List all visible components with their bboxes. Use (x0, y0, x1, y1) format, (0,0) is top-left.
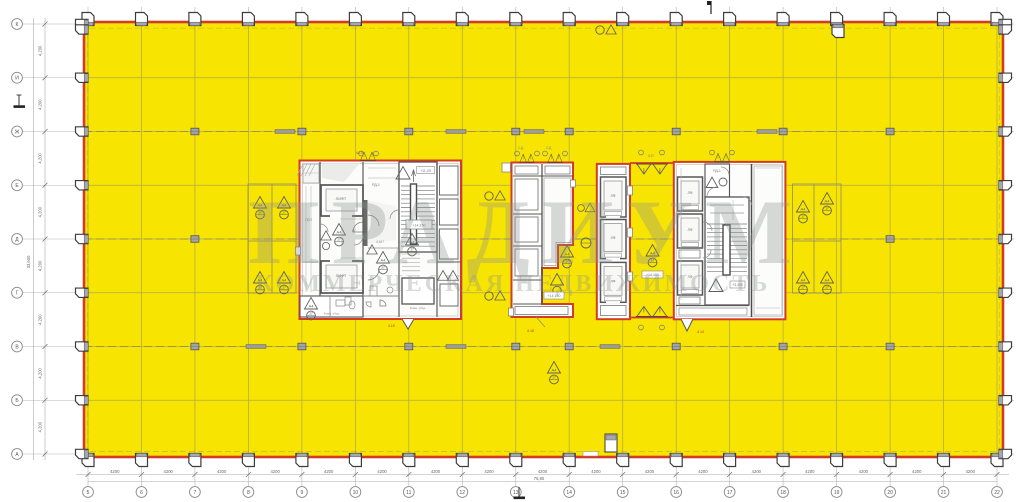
svg-text:РД-1: РД-1 (713, 169, 721, 173)
svg-text:4200: 4200 (966, 469, 976, 474)
svg-text:4200: 4200 (591, 469, 601, 474)
svg-text:19: 19 (834, 490, 840, 496)
svg-text:15: 15 (620, 490, 626, 496)
svg-text:16: 16 (673, 490, 679, 496)
svg-text:4,200: 4,200 (38, 260, 43, 271)
svg-text:6: 6 (140, 490, 143, 496)
svg-text:14: 14 (566, 490, 572, 496)
svg-text:20: 20 (887, 490, 893, 496)
svg-text:8: 8 (247, 490, 250, 496)
svg-text:4,200: 4,200 (38, 314, 43, 325)
svg-text:Г: Г (16, 291, 19, 297)
svg-text:4200: 4200 (217, 469, 227, 474)
svg-text:4200: 4200 (912, 469, 922, 474)
svg-text:4200: 4200 (484, 469, 494, 474)
svg-text:22: 22 (994, 490, 1000, 496)
svg-text:4200: 4200 (164, 469, 174, 474)
svg-text:4200: 4200 (110, 469, 120, 474)
svg-text:11: 11 (406, 490, 411, 496)
svg-text:КОММЕРЧЕСКАЯ НЕДВИЖИМОСТЬ: КОММЕРЧЕСКАЯ НЕДВИЖИМОСТЬ (256, 271, 771, 297)
svg-text:4200: 4200 (752, 469, 762, 474)
svg-text:И: И (15, 76, 19, 82)
svg-text:+11,00: +11,00 (420, 169, 431, 173)
svg-text:4,200: 4,200 (38, 99, 43, 110)
svg-text:4200: 4200 (698, 469, 708, 474)
svg-text:4.18: 4.18 (527, 329, 534, 333)
svg-text:18: 18 (780, 490, 786, 496)
svg-text:12: 12 (460, 490, 466, 496)
svg-text:Комн. убор.: Комн. убор. (324, 312, 340, 316)
svg-text:9: 9 (301, 490, 304, 496)
svg-text:4200: 4200 (324, 469, 334, 474)
svg-text:4,200: 4,200 (38, 152, 43, 163)
svg-text:4.15: 4.15 (388, 324, 395, 328)
svg-text:ПРАДИУМ: ПРАДИУМ (248, 181, 804, 283)
svg-text:4,200: 4,200 (38, 45, 43, 56)
svg-text:4.14: 4.14 (697, 330, 704, 334)
svg-text:5: 5 (87, 490, 90, 496)
svg-text:4200: 4200 (377, 469, 387, 474)
svg-text:4200: 4200 (859, 469, 869, 474)
svg-text:4,200: 4,200 (38, 421, 43, 432)
svg-text:17: 17 (727, 490, 733, 496)
svg-text:2-Д: 2-Д (518, 146, 524, 150)
svg-text:7: 7 (194, 490, 197, 496)
svg-text:10: 10 (353, 490, 359, 496)
svg-text:4200: 4200 (538, 469, 548, 474)
svg-text:33,600: 33,600 (26, 255, 31, 268)
svg-text:4200: 4200 (431, 469, 441, 474)
svg-text:2-Д: 2-Д (546, 146, 552, 150)
svg-text:21: 21 (941, 490, 947, 496)
svg-text:4,200: 4,200 (38, 367, 43, 378)
svg-text:4,200: 4,200 (38, 206, 43, 217)
svg-text:4200: 4200 (645, 469, 655, 474)
svg-text:4-П: 4-П (648, 154, 654, 158)
svg-text:76,80: 76,80 (534, 476, 545, 481)
svg-text:К: К (16, 22, 19, 28)
svg-text:Ж: Ж (15, 129, 20, 135)
svg-text:4200: 4200 (805, 469, 815, 474)
svg-text:4200: 4200 (270, 469, 280, 474)
svg-text:13: 13 (513, 490, 519, 496)
svg-text:Комн. убор.: Комн. убор. (410, 306, 426, 310)
